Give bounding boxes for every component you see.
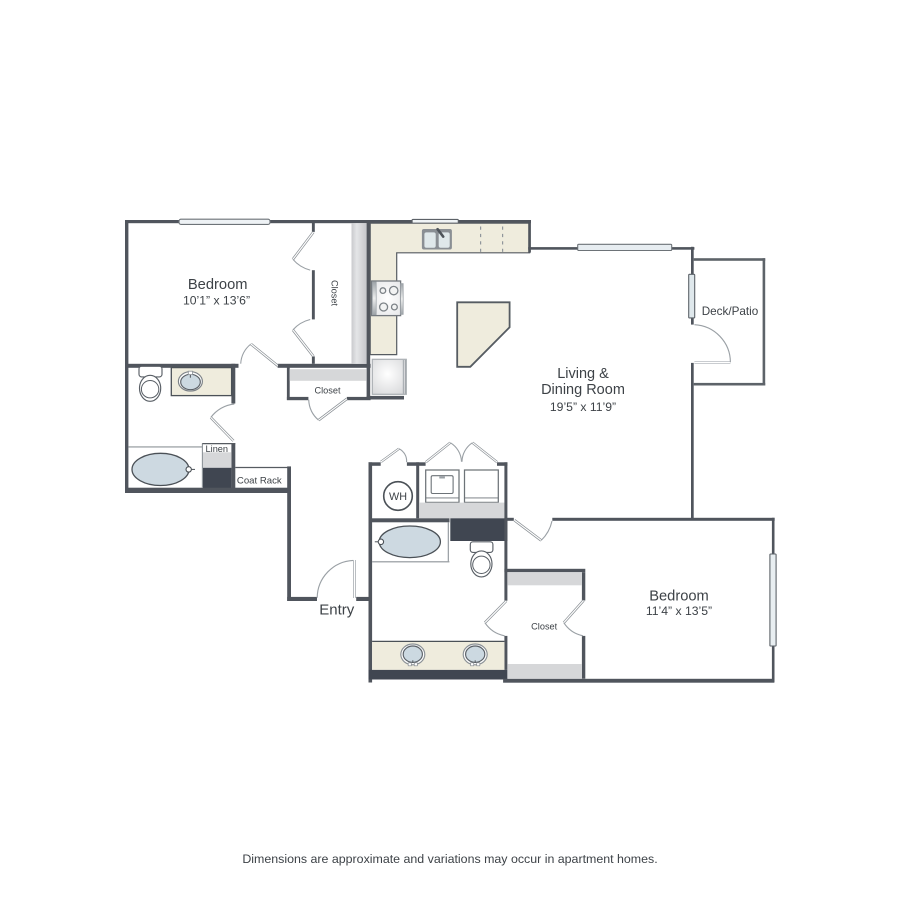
svg-text:WH: WH bbox=[389, 491, 407, 503]
svg-text:Closet: Closet bbox=[531, 622, 557, 632]
svg-text:Linen: Linen bbox=[206, 444, 228, 454]
svg-text:Entry: Entry bbox=[319, 602, 355, 619]
svg-text:19’5” x 11’9”: 19’5” x 11’9” bbox=[550, 400, 616, 414]
svg-text:Living &: Living & bbox=[557, 366, 609, 382]
svg-text:Bedroom: Bedroom bbox=[188, 277, 248, 293]
svg-text:11’4” x 13’5”: 11’4” x 13’5” bbox=[646, 604, 712, 618]
svg-text:Deck/Patio: Deck/Patio bbox=[702, 305, 759, 318]
svg-text:Coat Rack: Coat Rack bbox=[237, 475, 282, 486]
svg-text:10’1” x 13’6”: 10’1” x 13’6” bbox=[183, 293, 250, 307]
svg-text:Bedroom: Bedroom bbox=[649, 588, 709, 604]
svg-text:Closet: Closet bbox=[330, 280, 340, 306]
svg-text:Dimensions are approximate and: Dimensions are approximate and variation… bbox=[242, 852, 657, 866]
svg-text:Closet: Closet bbox=[314, 385, 340, 395]
svg-text:Dining Room: Dining Room bbox=[541, 382, 625, 398]
